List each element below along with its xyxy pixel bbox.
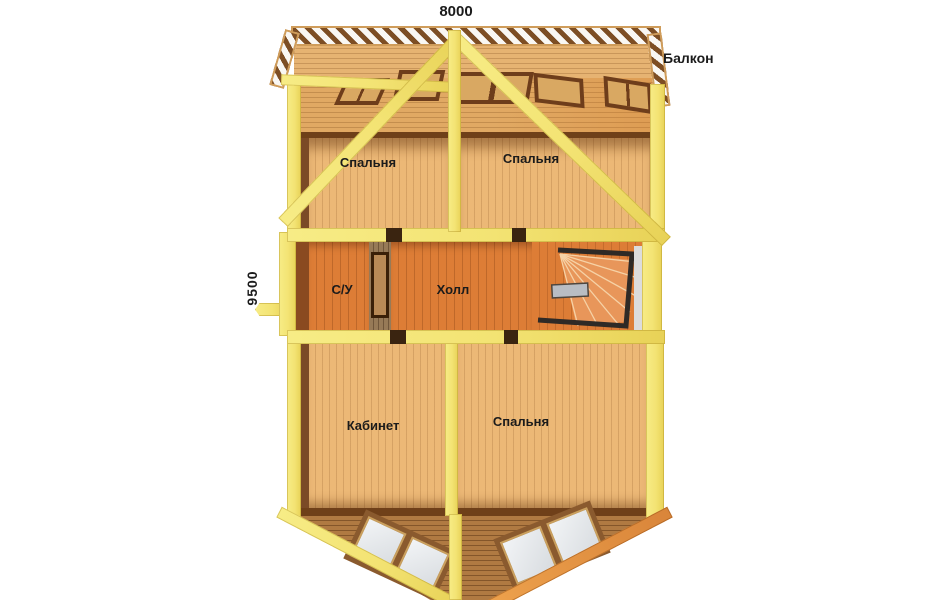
wall-right-upper xyxy=(650,84,665,234)
wall-edge xyxy=(301,344,309,508)
wall-cavity xyxy=(296,242,309,330)
wall-right-lower xyxy=(646,336,664,520)
wall-right-middle xyxy=(642,232,662,338)
room-label-bedroom-top-right: Спальня xyxy=(503,151,559,166)
doorway-gap xyxy=(386,228,402,242)
wall-left-middle xyxy=(279,232,296,336)
doorway-gap xyxy=(390,330,406,344)
room-label-hall: Холл xyxy=(437,282,470,297)
ridge-post xyxy=(448,30,461,232)
wall-edge xyxy=(301,138,309,230)
stair-landing-strip xyxy=(634,246,642,330)
dimension-depth-label: 9500 xyxy=(244,270,260,305)
floor-plan-canvas: 8000 9500 Балкон xyxy=(0,0,938,600)
balcony-railing xyxy=(291,26,661,46)
roof-window xyxy=(533,73,584,109)
wall-edge-bottom xyxy=(300,508,650,516)
doorway-gap xyxy=(504,330,518,344)
room-label-study: Кабинет xyxy=(347,418,400,433)
room-bedroom-bottom xyxy=(458,344,646,508)
wall-horizontal-upper xyxy=(287,228,665,242)
dimension-width-label: 8000 xyxy=(439,3,472,20)
staircase xyxy=(532,242,642,332)
center-post-bottom xyxy=(449,514,462,600)
wall-left-lower xyxy=(287,336,301,520)
room-label-bathroom: С/У xyxy=(331,282,352,297)
staircase-drawing xyxy=(532,242,642,332)
bathroom-door xyxy=(371,252,389,318)
room-label-bedroom-bottom: Спальня xyxy=(493,414,549,429)
wall-divider-lower xyxy=(445,336,458,516)
doorway-gap xyxy=(512,228,526,242)
room-label-bedroom-top-left: Спальня xyxy=(340,155,396,170)
wall-horizontal-lower xyxy=(287,330,665,344)
room-bedroom-top-left xyxy=(309,138,448,230)
balcony-label: Балкон xyxy=(663,50,714,66)
